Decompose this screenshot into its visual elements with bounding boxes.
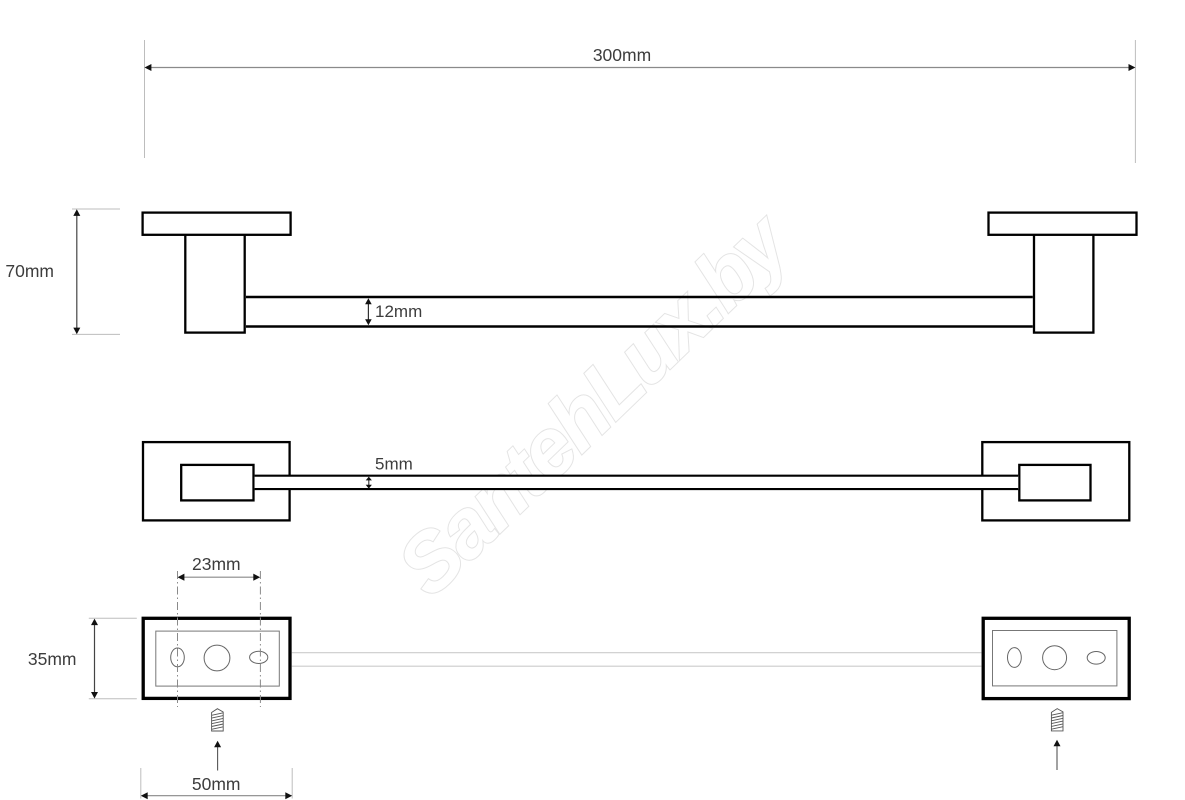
svg-text:23mm: 23mm (192, 554, 241, 574)
svg-text:70mm: 70mm (5, 261, 54, 281)
svg-text:50mm: 50mm (192, 774, 241, 794)
svg-text:5mm: 5mm (375, 455, 413, 474)
svg-text:300mm: 300mm (593, 45, 651, 65)
svg-text:35mm: 35mm (28, 649, 77, 669)
svg-text:12mm: 12mm (375, 302, 422, 321)
